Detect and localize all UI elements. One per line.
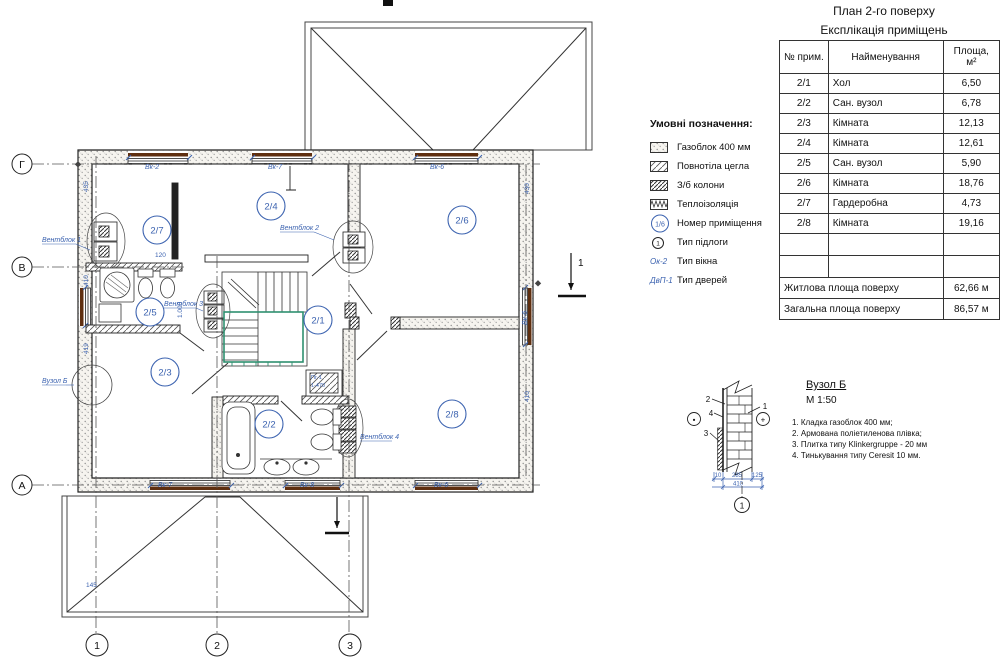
room-number-symbol-icon: 1/6	[650, 214, 677, 233]
ventblock4-label: Вентблок 4	[360, 433, 399, 441]
table-row: 2/8Кімната19,16	[780, 214, 1000, 234]
window-tag-b2: Вк-8	[300, 482, 314, 489]
window-tag-t2: Вк-7	[268, 164, 283, 171]
room-badge-23: 2/3	[158, 368, 171, 379]
room-badge-21: 2/1	[311, 316, 324, 327]
detail-minus-mark: •	[693, 416, 696, 425]
sheet-title-line1: План 2-го поверху	[770, 2, 998, 21]
axis-letter-g: Г	[19, 159, 25, 171]
detail-callout-1: 1	[763, 402, 768, 411]
window-tag-t1: Вк-2	[145, 164, 159, 171]
legend-item-window-type: Ок-2 Тип вікна	[650, 252, 790, 271]
window-tag-t3: Вк-6	[430, 164, 444, 171]
total-overall-row: Загальна площа поверху 86,57 м	[780, 299, 1000, 320]
drawing-sheet: Г В А 1 2 3 1 2/7 2/4	[0, 0, 1000, 667]
dim-145: 145	[86, 582, 97, 589]
dim-410: 410	[83, 275, 90, 286]
legend-item-brick: Повнотіла цегла	[650, 157, 790, 176]
detail-title: Вузол Б	[806, 379, 846, 391]
doors	[180, 252, 387, 421]
door-type-symbol: ДвП-1	[650, 276, 677, 285]
room-badge-25: 2/5	[143, 308, 156, 319]
total-living-label: Житлова площа поверху	[780, 278, 944, 299]
detail-callout-4: 4	[709, 409, 714, 418]
col-header-num: № прим.	[780, 41, 829, 74]
col-header-area: Площа,м²	[943, 41, 999, 74]
table-row: 2/1Хол6,50	[780, 74, 1000, 94]
table-row: 2/6Кімната18,76	[780, 174, 1000, 194]
dim-430: 430	[524, 183, 531, 194]
detail-note-4: 4. Тинькування типу Ceresit 10 мм.	[792, 450, 927, 461]
vent-block-3	[196, 284, 230, 338]
detail-axis-1: 1	[740, 501, 745, 511]
window-tag-r1: Вк-6	[522, 311, 529, 325]
table-row: 2/4Кімната12,61	[780, 134, 1000, 154]
window-tag-b1: Вк-7	[158, 482, 173, 489]
table-row: 2/7Гардеробна4,73	[780, 194, 1000, 214]
svg-text:1/6: 1/6	[655, 222, 665, 229]
dim-435: 435	[83, 181, 90, 192]
total-overall-label: Загальна площа поверху	[780, 299, 944, 320]
node-b-reference-label: Вузол Б	[42, 378, 68, 385]
col-header-name: Найменування	[828, 41, 943, 74]
legend-item-concrete-columns: З/б колони	[650, 176, 790, 195]
legend: Умовні позначення: Газоблок 400 мм Повно…	[650, 118, 790, 290]
shaft-tag-1: Пг-1	[311, 375, 322, 381]
legend-item-gasblock: Газоблок 400 мм	[650, 138, 790, 157]
table-header-row: № прим. Найменування Площа,м²	[780, 41, 1000, 74]
sheet-title-line2: Експлікація приміщень	[770, 21, 998, 40]
detail-callout-2: 2	[706, 395, 711, 404]
detail-note-2: 2. Армована поліетиленова плівка;	[792, 428, 927, 439]
concrete-swatch-icon	[650, 180, 677, 191]
detail-scale: М 1:50	[806, 395, 837, 406]
table-row: 2/2Сан. вузол6,78	[780, 94, 1000, 114]
detail-dim-285: 285	[732, 473, 743, 479]
legend-title: Умовні позначення:	[650, 118, 790, 130]
detail-callout-3: 3	[704, 429, 709, 438]
detail-note-3: 3. Плитка типу Klinkergruppe - 20 мм	[792, 439, 927, 450]
axis-number-1: 1	[94, 640, 100, 652]
detail-plus-mark: +	[761, 416, 766, 425]
room-badge-22: 2/2	[262, 420, 275, 431]
legend-item-insulation: Теплоізоляція	[650, 195, 790, 214]
room-badge-28: 2/8	[445, 410, 458, 421]
legend-item-door-type: ДвП-1 Тип дверей	[650, 271, 790, 290]
floor-type-symbol-icon: 1	[650, 236, 677, 250]
ventblock1-label: Вентблок 1	[42, 236, 81, 244]
detail-note-1: 1. Кладка газоблок 400 мм;	[792, 417, 927, 428]
axis-number-2: 2	[214, 640, 220, 652]
table-empty-row	[780, 234, 1000, 256]
detail-dim-125: 125	[752, 473, 763, 479]
detail-dim-10: 10	[715, 473, 722, 479]
explication-table: № прим. Найменування Площа,м² 2/1Хол6,50…	[779, 40, 1000, 320]
detail-notes: 1. Кладка газоблок 400 мм; 2. Армована п…	[792, 417, 927, 461]
room-badge-26: 2/6	[455, 216, 468, 227]
svg-text:1: 1	[656, 240, 660, 247]
vent-block-1	[87, 213, 125, 269]
table-row: 2/3Кімната12,13	[780, 114, 1000, 134]
axis-letter-v: В	[18, 262, 25, 274]
section-label: 1	[578, 258, 584, 269]
dim-419: 419	[83, 343, 90, 354]
total-living-row: Житлова площа поверху 62,66 м	[780, 278, 1000, 299]
table-empty-row	[780, 256, 1000, 278]
lower-roof-outline	[62, 496, 368, 617]
node-detail-drawing: 2 4 3 1 • + 10 285 125 410 1	[688, 381, 770, 513]
table-row: 2/5Сан. вузол5,90	[780, 154, 1000, 174]
axis-number-3: 3	[347, 640, 353, 652]
brick-swatch-icon	[650, 161, 677, 172]
ventblock2-label: Вентблок 2	[280, 224, 319, 232]
legend-item-floor-type: 1 Тип підлоги	[650, 233, 790, 252]
dim-410b: 410	[524, 391, 531, 402]
room-badge-24: 2/4	[264, 202, 277, 213]
room-badge-27: 2/7	[150, 226, 163, 237]
total-living-value: 62,66 м	[943, 278, 999, 299]
dim-120: 120	[155, 252, 166, 259]
explication-title: План 2-го поверху Експлікація приміщень	[770, 2, 998, 40]
upper-roof-outline	[305, 22, 592, 150]
window-tag-b3: Вк-6	[434, 482, 448, 489]
total-overall-value: 86,57 м	[943, 299, 999, 320]
gas-block-swatch-icon	[650, 142, 677, 153]
shaft-tag-2: 1-470	[311, 383, 325, 389]
insulation-swatch-icon	[650, 199, 677, 210]
legend-item-room-number: 1/6 Номер приміщення	[650, 214, 790, 233]
cropped-title-mark	[383, 0, 393, 6]
stairs	[222, 272, 307, 366]
dim-1000: 1.000	[177, 301, 184, 318]
axis-letter-a: А	[18, 480, 25, 492]
window-type-symbol: Ок-2	[650, 257, 677, 266]
